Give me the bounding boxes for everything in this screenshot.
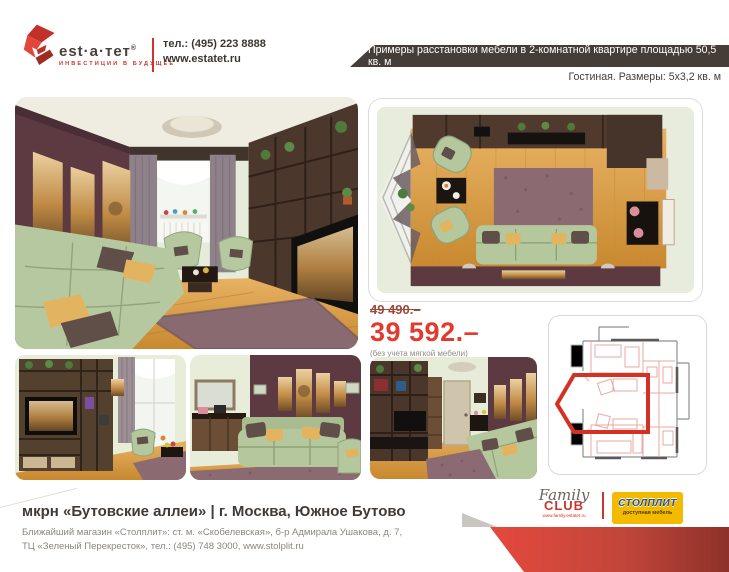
new-price: 39 592.– — [370, 319, 479, 346]
estatet-logo-icon — [19, 20, 57, 72]
photo-sofa-wall-art — [190, 355, 361, 480]
brand-name: est·a·тет® — [59, 44, 175, 59]
price-block: 49 490.– 39 592.– (без учета мягкой мебе… — [370, 303, 479, 358]
brochure-page: est·a·тет® инвестиции в будущее тел.: (4… — [0, 0, 729, 572]
room-subtitle: Гостиная. Размеры: 5х3,2 кв. м — [568, 71, 721, 83]
top-view-panel — [368, 98, 703, 302]
title-banner: Примеры расстановки мебели в 2-комнатной… — [350, 45, 729, 67]
floor-plan-drawing — [555, 323, 702, 468]
living-room-perspective-render — [15, 97, 358, 349]
floor-plan-card — [548, 315, 707, 475]
registered-mark: ® — [131, 45, 137, 52]
photo-room-entrance — [370, 357, 537, 479]
corner-ribbon — [0, 510, 729, 572]
phone-number: тел.: (495) 223 8888 — [163, 39, 266, 50]
title-banner-text: Примеры расстановки мебели в 2-комнатной… — [368, 44, 729, 68]
photo-living-room-top-view — [377, 107, 694, 293]
brand-tagline: инвестиции в будущее — [59, 62, 175, 68]
room-entrance-render — [370, 357, 537, 479]
logo-text-block: est·a·тет® инвестиции в будущее — [59, 44, 175, 68]
header-divider — [152, 38, 154, 72]
tv-wall-unit-render — [15, 355, 186, 480]
website-link[interactable]: www.estatet.ru — [163, 54, 266, 65]
photo-tv-wall-unit — [15, 355, 186, 480]
living-room-top-down-render — [377, 107, 694, 293]
old-price: 49 490.– — [370, 303, 479, 316]
photo-living-room-perspective — [15, 97, 358, 349]
contact-block: тел.: (495) 223 8888 www.estatet.ru — [163, 39, 266, 65]
sofa-wall-art-render — [190, 355, 361, 480]
stolplit-name: СТОЛПЛИТ — [618, 499, 677, 509]
